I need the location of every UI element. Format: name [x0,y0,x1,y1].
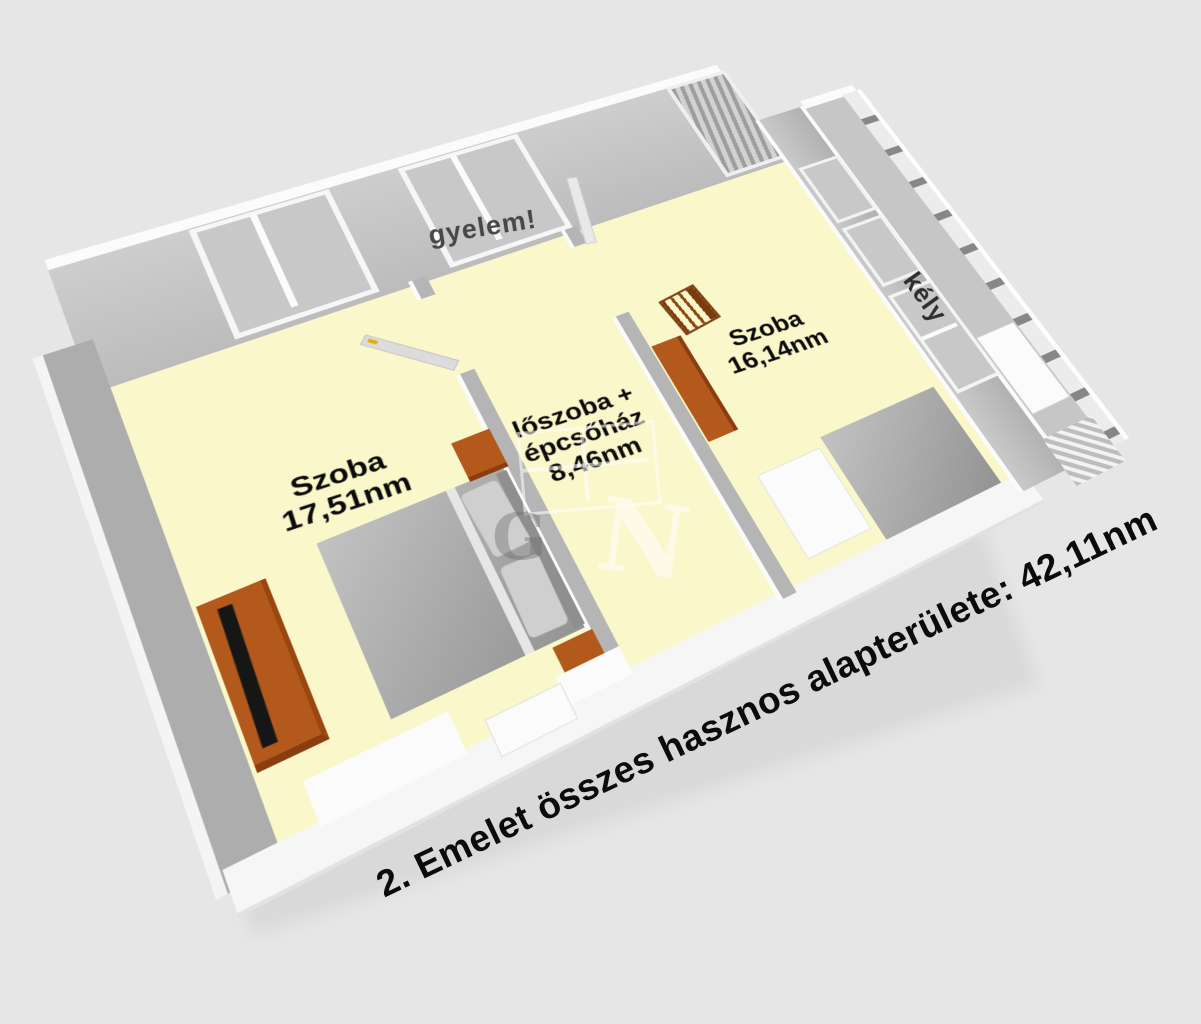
floorplan-scene: Szoba 17,51nm lőszoba + épcsőház 8,46nm … [0,0,1201,1024]
room1-door-handle [367,339,378,345]
